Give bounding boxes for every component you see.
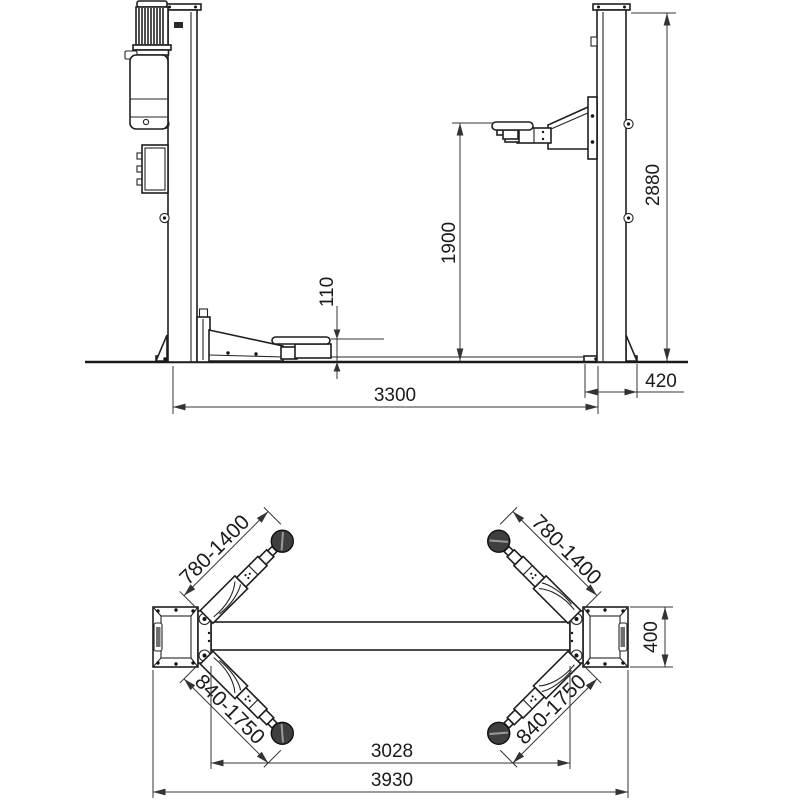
floor-track-plate (211, 622, 570, 650)
left-post-slot-fill (156, 627, 161, 647)
right-carriage (588, 97, 597, 159)
extension-tick (500, 750, 517, 767)
dim-lifting-height-label: 1900 (439, 222, 460, 264)
base-bolt (174, 608, 177, 611)
right-gusset (626, 335, 637, 361)
plan-left-base (153, 607, 211, 667)
pivot-pin (575, 617, 579, 621)
base-bolt (603, 662, 606, 665)
dim-inner-distance-label: 3028 (371, 741, 413, 762)
drain-bolt (143, 119, 148, 124)
oil-tank (130, 55, 168, 129)
dim-base-width: 420 (585, 364, 684, 398)
arm-stage1 (533, 576, 580, 623)
dim-column-distance: 3300 (173, 366, 598, 414)
left-gusset (156, 335, 167, 361)
raised-arm (492, 97, 597, 159)
extension-tick (264, 750, 281, 767)
pivot-pin (575, 654, 579, 658)
arm-stage1 (200, 576, 247, 623)
motor-fins (139, 8, 163, 44)
carriage-bolt (571, 632, 573, 634)
knob-center (627, 122, 630, 125)
dim-base-width-label: 420 (645, 371, 677, 392)
extension-tick (584, 666, 601, 683)
lift-pad (492, 122, 533, 130)
base-bolt (603, 608, 606, 611)
extension-tick (180, 666, 197, 683)
knob-center (163, 216, 166, 219)
left-post-latch (174, 22, 183, 28)
power-unit (125, 1, 171, 129)
carriage-bolt (591, 114, 595, 118)
pivot-pin (203, 654, 207, 658)
cap-bolt (194, 6, 197, 9)
base-bolt (191, 661, 194, 664)
left-post-column (168, 10, 197, 362)
base-bolt (156, 609, 159, 612)
dim-min-pad-height-label: 110 (317, 277, 338, 307)
carriage-bolt (208, 632, 210, 634)
cap-bolt (623, 6, 626, 9)
arrowhead (334, 362, 341, 372)
dim-base-depth-label: 400 (641, 621, 662, 653)
carriage-bolt (208, 640, 210, 642)
dim-lifting-height: 1900 (439, 123, 494, 361)
plan-view: 780-1400 780-1400 (153, 496, 673, 798)
motor-cap (137, 1, 167, 7)
pad-stem (503, 130, 518, 139)
base-bolt (174, 662, 177, 665)
right-post-slot-fill (621, 627, 626, 647)
knob-center (627, 216, 630, 219)
dim-column-distance-label: 3300 (374, 385, 416, 406)
arm-front-left: 780-1400 (168, 496, 297, 625)
base-bolt (621, 609, 624, 612)
extension-tick (500, 507, 517, 524)
dim-overall-width-label: 3930 (371, 770, 413, 791)
lift-technical-drawing: 2880 1900 110 3300 42 (0, 0, 800, 800)
lift-pad (272, 337, 330, 344)
extension-tick (584, 591, 601, 608)
extension-tick (180, 591, 197, 608)
arm-bolt (226, 351, 229, 354)
control-box (137, 145, 168, 193)
right-post (591, 4, 633, 362)
right-post-tab (591, 37, 597, 46)
pivot-pin (203, 617, 207, 621)
base-bolt (191, 609, 194, 612)
anchor-bolt (163, 357, 166, 360)
arm-bolt (254, 352, 257, 355)
dim-base-depth: 400 (630, 607, 673, 667)
pin-hole (542, 138, 544, 140)
cap-bolt (597, 6, 600, 9)
base-bolt (586, 661, 589, 664)
lowered-arm (197, 309, 331, 362)
dim-overall-height-label: 2880 (643, 164, 664, 206)
carriage-bolt (591, 140, 595, 144)
carriage-bolt (571, 640, 573, 642)
base-bolt (621, 661, 624, 664)
right-post-column (597, 10, 626, 362)
base-bolt (156, 661, 159, 664)
front-view: 2880 1900 110 3300 42 (85, 1, 688, 414)
dim-overall-height: 2880 (631, 13, 676, 361)
pin-hole (542, 131, 544, 133)
extension-tick (264, 507, 281, 524)
plan-right-base (570, 607, 628, 667)
base-bolt (586, 609, 589, 612)
arm-tip-section (295, 344, 331, 358)
control-box-body (142, 145, 168, 193)
arrowhead (334, 330, 341, 340)
dim-min-pad-height: 110 (317, 277, 384, 379)
